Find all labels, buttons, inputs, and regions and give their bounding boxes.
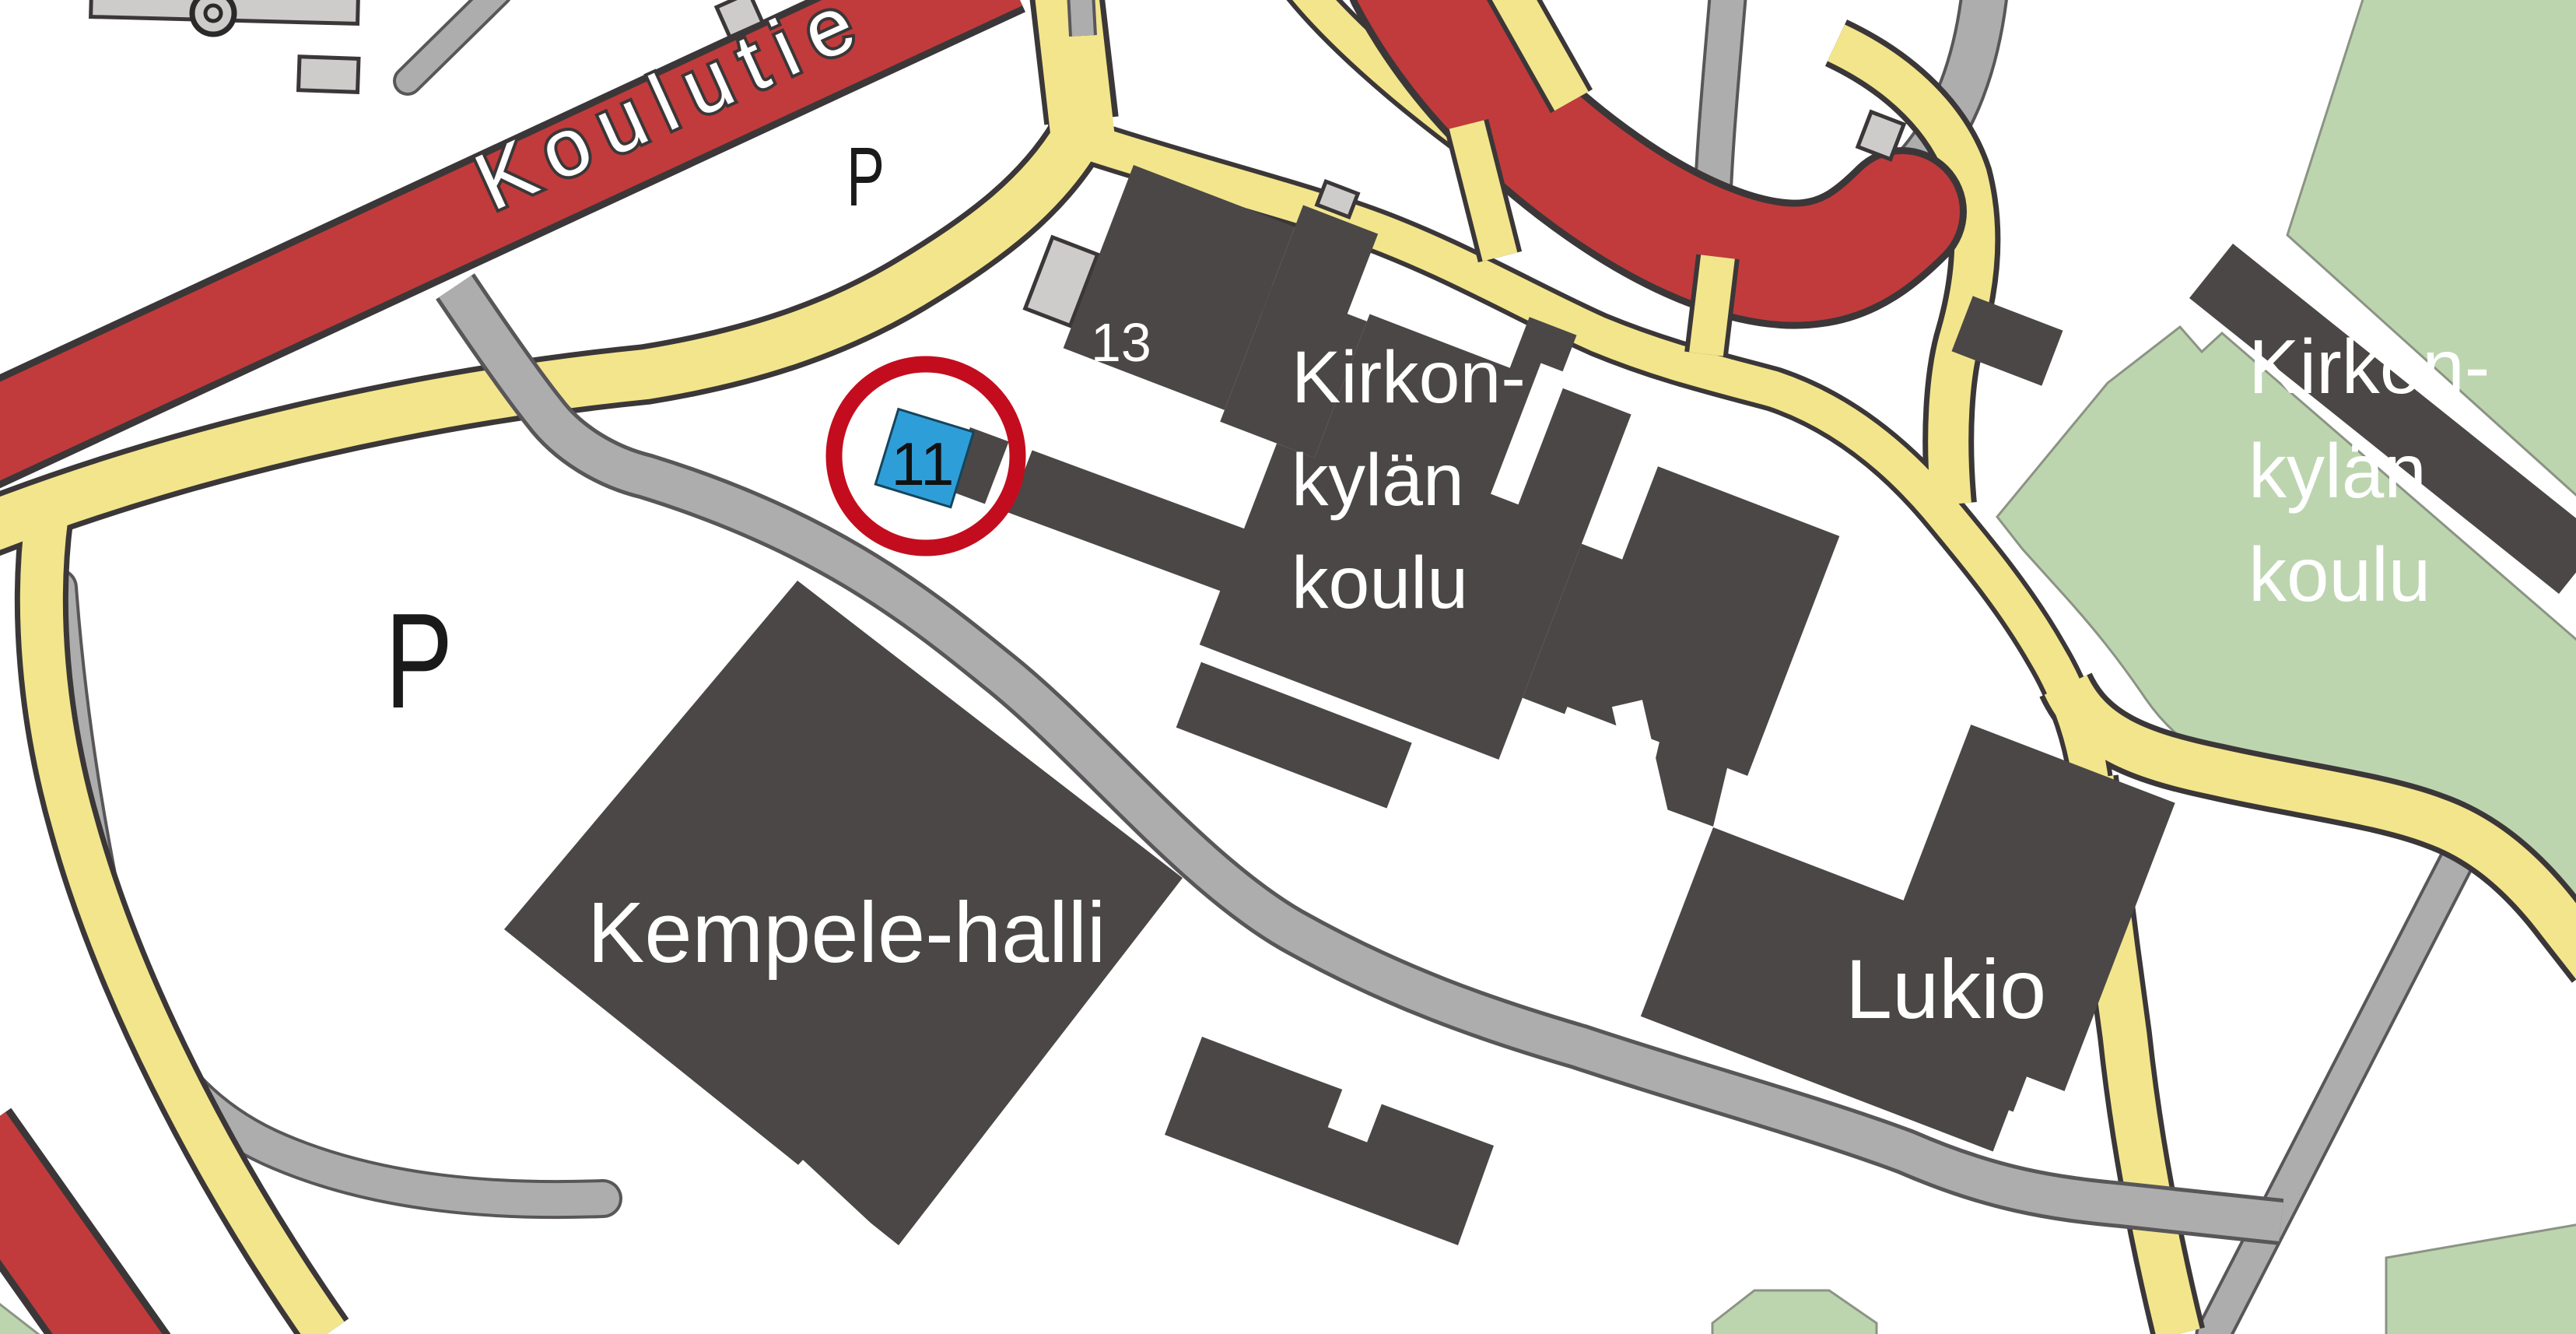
- svg-text:koulu: koulu: [1292, 542, 1468, 624]
- svg-text:P: P: [846, 129, 885, 224]
- svg-text:Lukio: Lukio: [1845, 942, 2046, 1036]
- svg-text:11: 11: [892, 430, 955, 498]
- svg-text:koulu: koulu: [2248, 532, 2431, 617]
- svg-text:P: P: [385, 585, 453, 737]
- svg-text:Kirkon-: Kirkon-: [1292, 336, 1526, 419]
- svg-text:13: 13: [1091, 312, 1151, 373]
- svg-text:Kirkon-: Kirkon-: [2248, 324, 2490, 409]
- svg-text:Kempele-halli: Kempele-halli: [587, 885, 1106, 981]
- svg-text:kylän: kylän: [2248, 428, 2427, 514]
- svg-text:kylän: kylän: [1292, 439, 1464, 521]
